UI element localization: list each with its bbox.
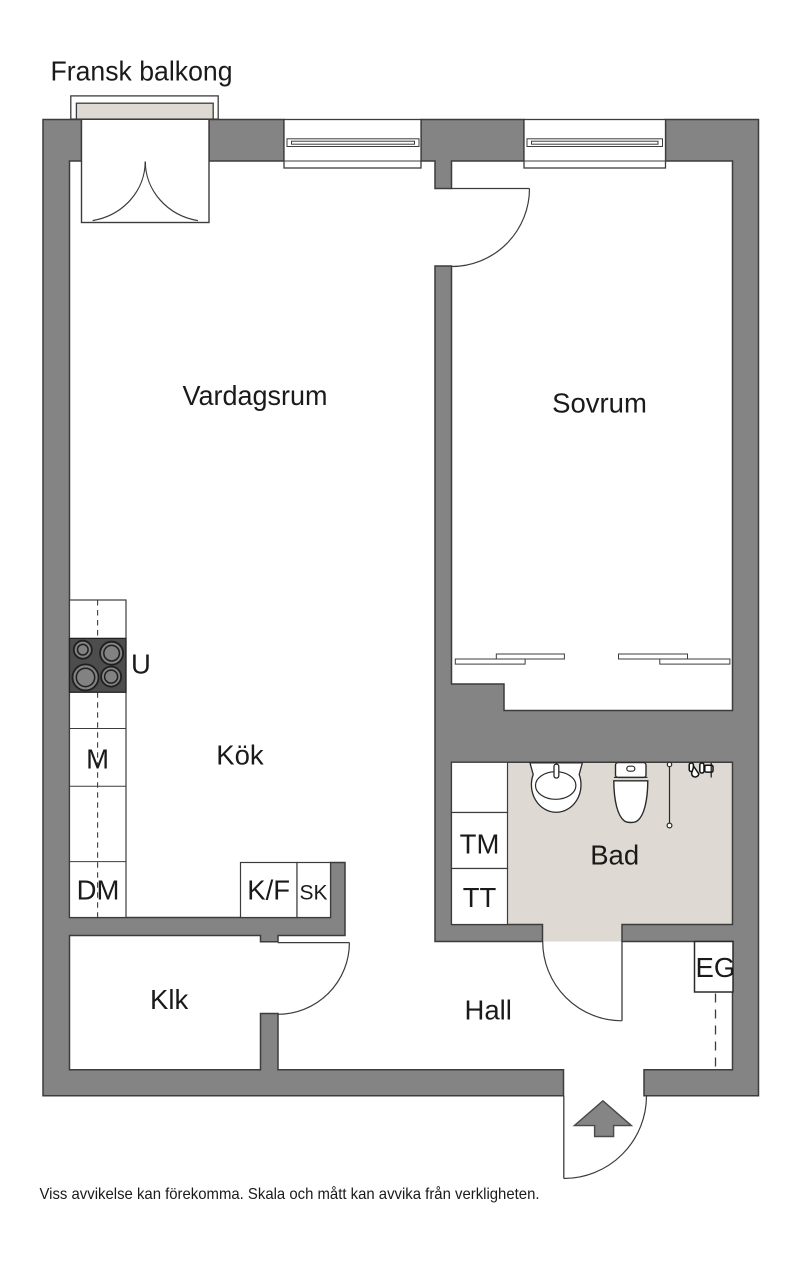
svg-text:DM: DM xyxy=(77,875,120,906)
svg-text:Bad: Bad xyxy=(590,840,639,871)
svg-text:Kök: Kök xyxy=(216,740,264,771)
svg-text:M: M xyxy=(86,743,109,774)
svg-text:Fransk balkong: Fransk balkong xyxy=(51,56,233,87)
svg-text:TM: TM xyxy=(460,829,500,860)
svg-text:Sovrum: Sovrum xyxy=(552,387,647,418)
svg-text:Klk: Klk xyxy=(150,984,188,1015)
svg-text:TT: TT xyxy=(463,882,497,913)
svg-text:Hall: Hall xyxy=(465,995,512,1026)
svg-text:Vardagsrum: Vardagsrum xyxy=(183,380,328,411)
svg-text:SK: SK xyxy=(299,882,327,905)
svg-text:Viss avvikelse kan förekomma.: Viss avvikelse kan förekomma. Skala och … xyxy=(40,1185,540,1203)
svg-text:K/F: K/F xyxy=(247,875,290,906)
svg-text:EG: EG xyxy=(696,952,736,983)
svg-text:U: U xyxy=(131,649,151,680)
